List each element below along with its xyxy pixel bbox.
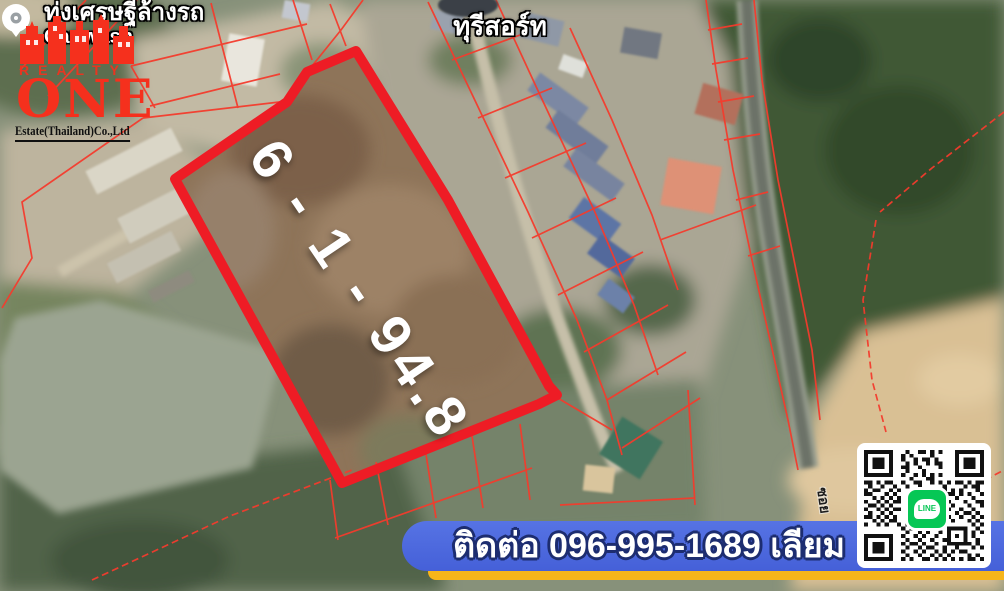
logo-realty-text: REALTY	[19, 62, 145, 78]
resort-label: ทุรีสอร์ท	[420, 6, 580, 47]
line-icon: LINE	[905, 487, 949, 531]
line-label: LINE	[914, 499, 940, 519]
logo-one-text: ONE	[16, 78, 145, 122]
contact-phone-text: ติดต่อ 096-995-1689 เลียม	[424, 521, 874, 571]
road-label: ซอย	[810, 486, 835, 515]
logo-estate-text: Estate(Thailand)Co.,Ltd	[15, 123, 130, 142]
qr-code: LINE	[857, 443, 991, 568]
logo: REALTY ONE Estate(Thailand)Co.,Ltd	[15, 12, 145, 142]
building-skyline-icon	[18, 12, 134, 64]
ad-image: ทุรีสอร์ท ทุ่งเศรษฐีล้างรถ Car wash 6 - …	[0, 0, 1004, 591]
